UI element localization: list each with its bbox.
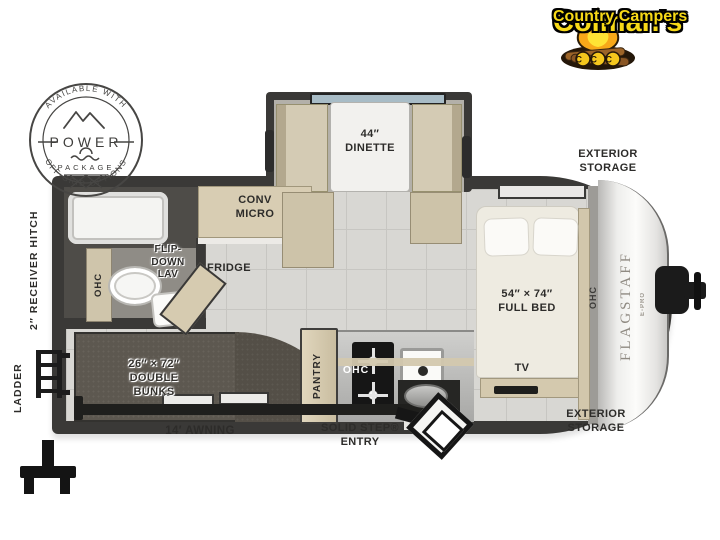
receiver-hitch-foot [24,478,34,494]
svg-text:OFF-GRID OPTIONS: OFF-GRID OPTIONS [43,157,129,188]
awning-bracket [74,396,83,420]
wardrobe-right [410,192,462,244]
tv-unit [494,386,538,394]
slideout-window-left [265,130,274,172]
dealer-tagline: Country Campers [553,8,687,26]
badge-arc-bottom-text: OFF-GRID OPTIONS [43,157,129,188]
exterior-storage-top-label: EXTERIOR STORAGE [560,148,656,176]
full-bed-label: 54″ × 74″ FULL BED [472,288,582,316]
floorplan-page: CCC Colman's Country Campers AVAILABLE W… [0,0,720,540]
pillow [483,217,529,257]
faucet-icon [418,366,428,376]
ladder-hook [58,353,70,358]
ohc-bath-label: OHC [93,251,104,319]
bedroom-window [498,184,586,199]
conv-micro-label: CONV MICRO [212,194,298,222]
ohc-bed-label: OHC [588,272,604,324]
dinette-bench-left [276,104,328,192]
receiver-hitch-foot [60,478,70,494]
awning-label: 14′ AWNING [148,424,252,438]
hitch-jack [694,272,701,310]
fridge-label: FRIDGE [196,262,262,276]
flip-down-lav-label: FLIP- DOWN LAV [140,244,196,282]
ladder-hook [58,390,70,395]
model-name: FLAGSTAFF [618,216,638,396]
receiver-hitch-label: 2″ RECEIVER HITCH [28,185,46,355]
ladder-label: LADDER [12,350,30,426]
exterior-storage-bottom-label: EXTERIOR STORAGE [548,408,644,436]
dinette-label: 44″ DINETTE [330,128,410,156]
receiver-hitch-post [42,440,54,470]
ohc-kitchen-label: OHC [334,364,378,377]
slideout-window-right [462,136,471,178]
power-package-badge: AVAILABLE WITH OFF-GRID OPTIONS POWER PA… [24,78,148,202]
pillow [532,217,578,257]
tv-label: TV [500,362,544,376]
model-edition: E-PRO [640,282,650,326]
badge-wave-icon [71,156,99,160]
badge-mountains-icon [64,112,104,128]
double-bunks-label: 26″ × 72″ DOUBLE BUNKS [104,358,204,399]
badge-subtitle: PACKAGE [58,163,115,172]
campfire-initials: CCC [576,55,621,65]
solid-step-entry-label: SOLID STEP® ENTRY [310,422,410,450]
dinette-bench-right [412,104,462,192]
awning-rail [78,404,450,415]
